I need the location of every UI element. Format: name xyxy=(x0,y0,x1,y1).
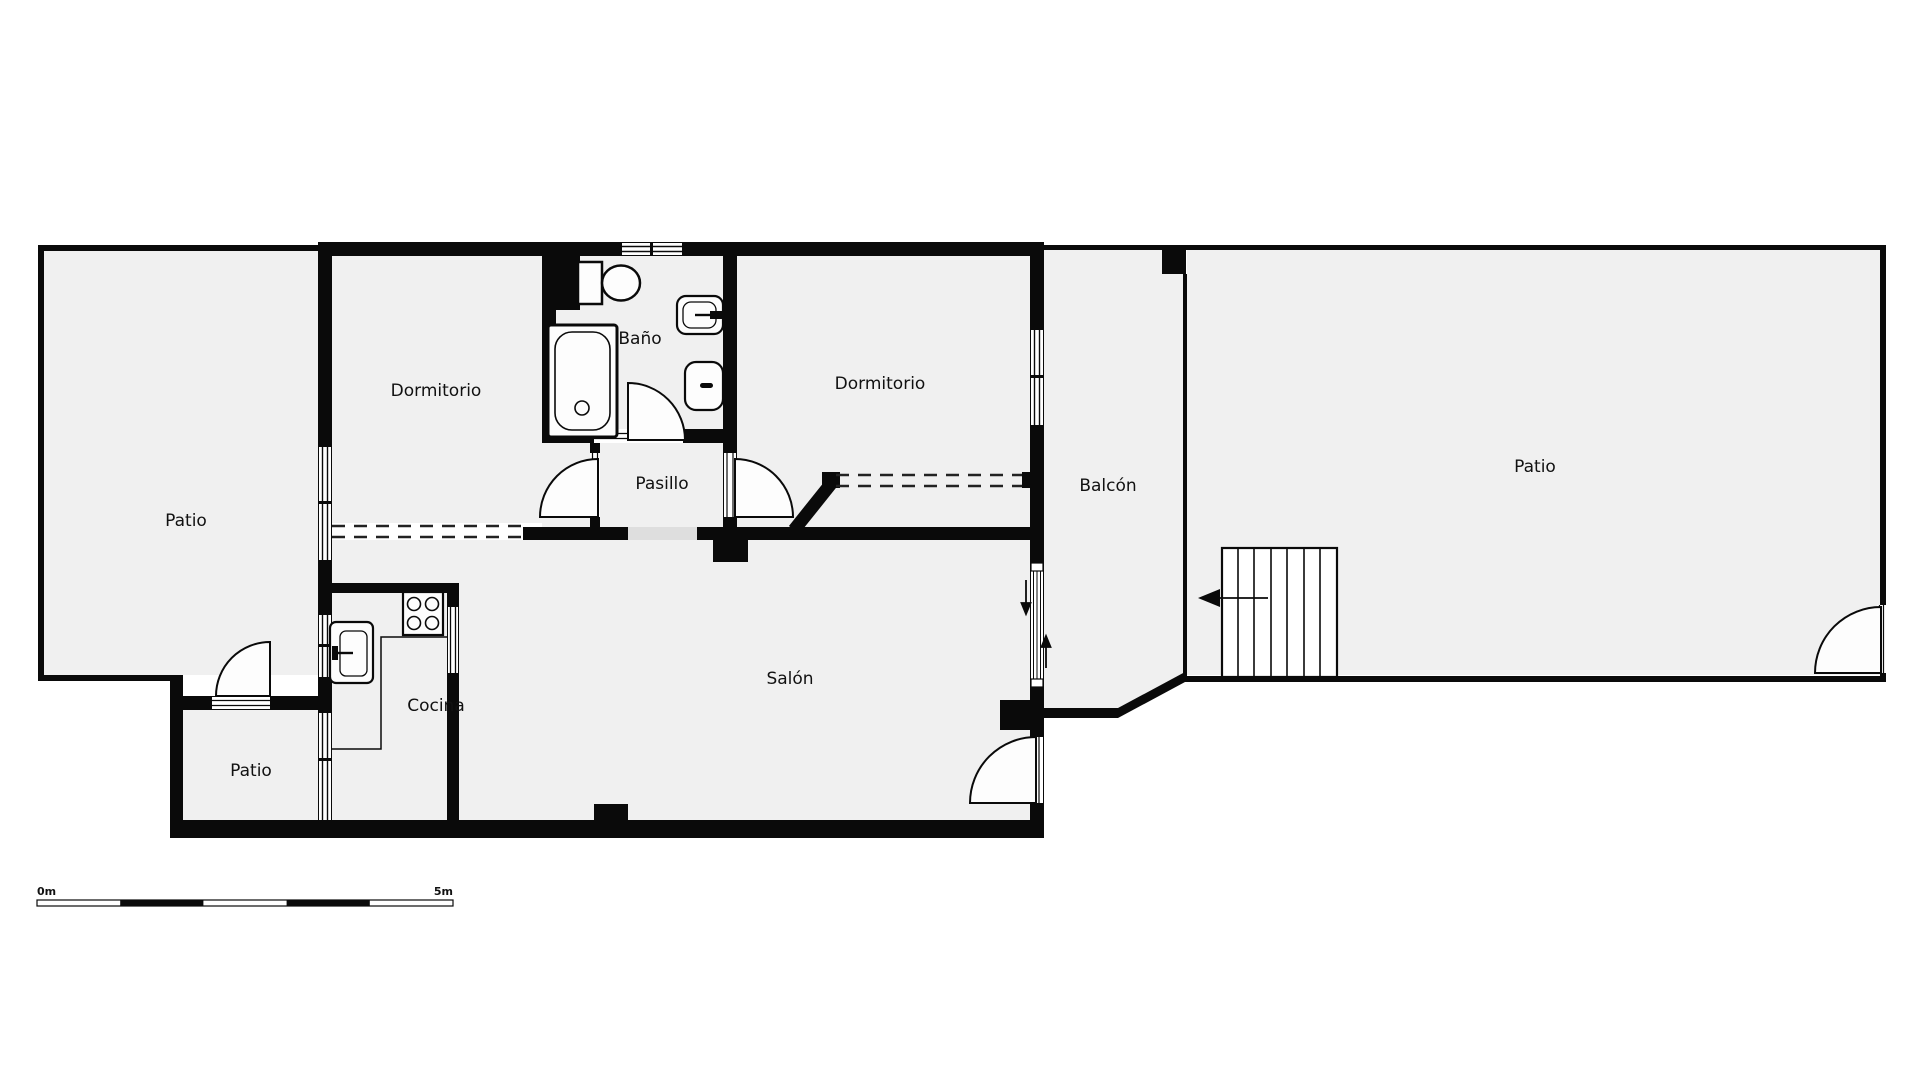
scale-bar-track xyxy=(37,900,453,906)
label-bano: Baño xyxy=(618,329,661,349)
label-pasillo: Pasillo xyxy=(635,474,688,494)
bathtub xyxy=(548,325,617,437)
wall-outer-top-left xyxy=(38,245,318,251)
toilet xyxy=(578,262,640,304)
wall-patio-small-left xyxy=(170,675,183,838)
wall-balcon-bottom xyxy=(1043,708,1118,718)
washbasin xyxy=(677,296,723,334)
label-patio-left: Patio xyxy=(165,511,207,531)
stove xyxy=(403,592,443,635)
bidet xyxy=(685,362,723,410)
floor-plan: Patio Patio Dormitorio Baño Pasillo Dorm… xyxy=(0,0,1920,1080)
label-patio-small: Patio xyxy=(230,761,272,781)
wall-salon-balcon xyxy=(1030,242,1044,822)
label-patio-right: Patio xyxy=(1514,457,1556,477)
wall-salon-corner-block xyxy=(1000,700,1044,730)
floor-patio-left xyxy=(44,250,318,675)
label-dormitorio-1: Dormitorio xyxy=(391,381,482,401)
window-cocina-salon xyxy=(448,607,458,673)
sliding-door-salon-balcon xyxy=(1031,563,1043,687)
scale-end-label: 5m xyxy=(434,885,453,898)
wall-outer-top-right xyxy=(1043,245,1886,250)
window-bano-top xyxy=(622,243,682,255)
scale-bar-segment-2 xyxy=(120,900,203,906)
threshold-pasillo-salon xyxy=(628,527,697,540)
floor-strip-cocina-salon xyxy=(332,540,459,583)
label-balcon: Balcón xyxy=(1079,476,1136,496)
scale-bar-segment-4 xyxy=(287,900,370,906)
sill-patio-small-door xyxy=(212,697,270,709)
wall-salon-top xyxy=(697,527,1044,540)
window-dormitorio-2-balcon xyxy=(1031,330,1043,425)
kitchen-sink xyxy=(330,622,373,683)
window-dormitorio-1 xyxy=(319,447,331,560)
wall-pillar-salon xyxy=(713,540,748,562)
wall-pasillo-bottom-left xyxy=(523,527,628,540)
wall-bano-bottom-right xyxy=(683,429,737,443)
wall-outer-left xyxy=(38,245,44,681)
label-cocina: Cocina xyxy=(407,696,465,716)
wall-patio-left-bottom xyxy=(38,675,183,681)
label-dormitorio-2: Dormitorio xyxy=(835,374,926,394)
floor-salon xyxy=(459,540,1030,822)
floor-plan-canvas: Patio Patio Dormitorio Baño Pasillo Dorm… xyxy=(0,0,1920,1080)
wall-bano-pillar xyxy=(542,242,580,310)
wall-balcon-patio-divider xyxy=(1183,274,1187,678)
window-patio-small xyxy=(319,713,331,820)
label-salon: Salón xyxy=(766,669,813,689)
scale-start-label: 0m xyxy=(37,885,56,898)
wall-divider-top-square xyxy=(1162,250,1186,274)
wall-bottom-pillar xyxy=(594,804,628,838)
wall-closet-chunk-right xyxy=(1022,472,1044,488)
scale-bar: 0m 5m xyxy=(37,885,453,906)
